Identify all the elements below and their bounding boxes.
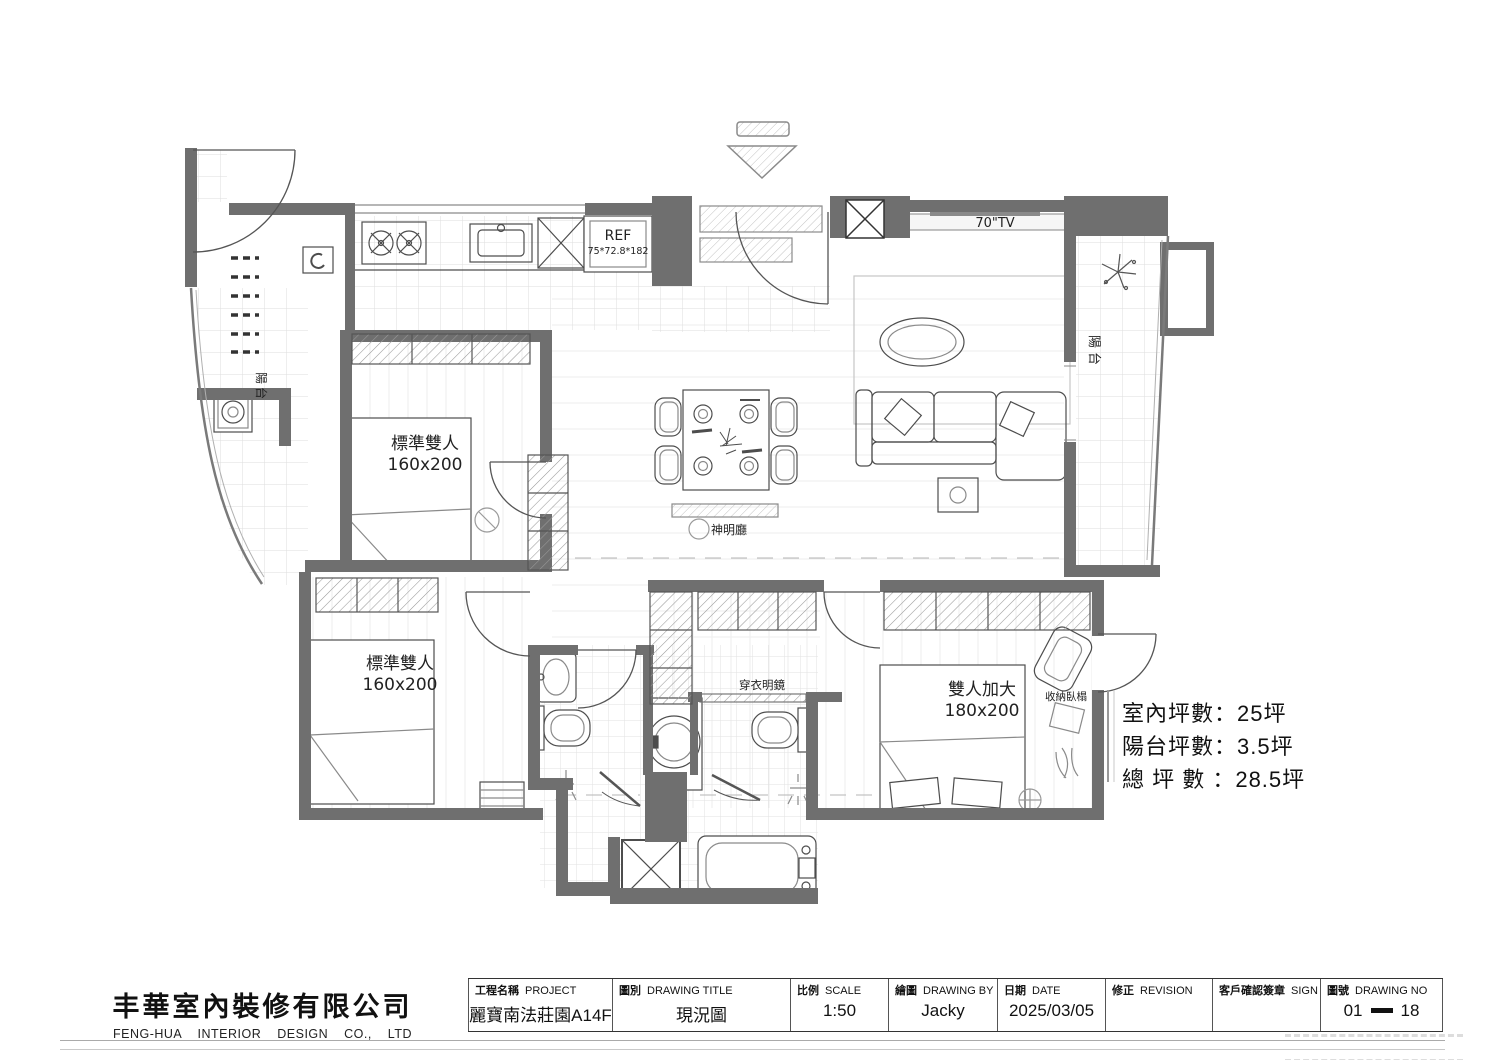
bedroom2-size: 160x200 bbox=[363, 675, 438, 695]
sign-label-en: SIGN bbox=[1291, 985, 1318, 997]
revision-label-zh: 修正 bbox=[1112, 985, 1134, 997]
entry-door-panels bbox=[700, 206, 822, 262]
floor-plan: 標準雙人 160x200 標準雙人 160x200 雙人加大 180x200 R… bbox=[0, 0, 1500, 1060]
sign-label-zh: 客戶確認簽章 bbox=[1219, 985, 1285, 997]
scale-label-zh: 比例 bbox=[797, 985, 819, 997]
by-value: Jacky bbox=[889, 1001, 997, 1021]
area-balcony: 陽台坪數：3.5坪 bbox=[1122, 730, 1305, 763]
project-label-en: PROJECT bbox=[525, 985, 576, 997]
bedroom3-label: 雙人加大 bbox=[948, 680, 1016, 700]
area-ticks bbox=[1108, 690, 1114, 782]
bedroom1-size: 160x200 bbox=[388, 455, 463, 475]
title-label-en: DRAWING TITLE bbox=[647, 985, 733, 997]
dressing-mirror-label: 穿衣明鏡 bbox=[739, 678, 785, 692]
bedroom1-label: 標準雙人 bbox=[391, 434, 459, 454]
cell-drawing-by: 繪圖DRAWING BY Jacky bbox=[888, 979, 997, 1031]
date-value: 2025/03/05 bbox=[998, 1001, 1105, 1021]
no-label-en: DRAWING NO bbox=[1355, 985, 1427, 997]
project-value: 麗寶南法莊園A14F bbox=[469, 1001, 612, 1026]
cell-drawing-no: 圖號DRAWING NO 0118 bbox=[1320, 979, 1443, 1031]
date-label-zh: 日期 bbox=[1004, 985, 1026, 997]
drawing-no-right: 18 bbox=[1401, 1001, 1420, 1020]
cell-sign: 客戶確認簽章SIGN bbox=[1212, 979, 1320, 1031]
company-block: 丰華室內裝修有限公司 FENG-HUA INTERIOR DESIGN CO.,… bbox=[60, 985, 465, 1041]
drawing-no-left: 01 bbox=[1344, 1001, 1363, 1020]
shrine-hall-label: 神明廳 bbox=[711, 522, 747, 537]
by-label-en: DRAWING BY bbox=[923, 985, 994, 997]
dining-table-icon bbox=[683, 390, 769, 490]
by-label-zh: 繪圖 bbox=[895, 985, 917, 997]
date-label-en: DATE bbox=[1032, 985, 1061, 997]
entry-arrow-icon bbox=[728, 122, 796, 178]
sheet-rule-2 bbox=[60, 1049, 1445, 1050]
company-name-en: FENG-HUA INTERIOR DESIGN CO., LTD bbox=[60, 1027, 465, 1041]
storage-daybed-label: 收納臥榻 bbox=[1045, 690, 1087, 703]
title-block: 工程名稱PROJECT 麗寶南法莊園A14F 圖別DRAWING TITLE 現… bbox=[468, 978, 1443, 1032]
drawing-sheet: 標準雙人 160x200 標準雙人 160x200 雙人加大 180x200 R… bbox=[0, 0, 1500, 1060]
refrigerator bbox=[584, 216, 652, 272]
bedroom2-label: 標準雙人 bbox=[366, 654, 434, 674]
fridge-label: REF bbox=[605, 228, 632, 244]
project-label-zh: 工程名稱 bbox=[475, 985, 519, 997]
sheet-rule-1 bbox=[60, 1040, 1445, 1041]
title-label-zh: 圖別 bbox=[619, 985, 641, 997]
drawing-no-value: 0118 bbox=[1321, 1001, 1442, 1021]
bedroom3-size: 180x200 bbox=[945, 701, 1020, 721]
scale-value: 1:50 bbox=[791, 1001, 888, 1021]
cell-date: 日期DATE 2025/03/05 bbox=[997, 979, 1105, 1031]
gas-meter-icon bbox=[303, 247, 333, 273]
structural-column bbox=[846, 200, 884, 238]
balcony-left-label: 陽台 bbox=[254, 372, 269, 402]
drawing-no-dash bbox=[1371, 1008, 1393, 1013]
no-label-zh: 圖號 bbox=[1327, 985, 1349, 997]
area-indoor: 室內坪數：25坪 bbox=[1122, 697, 1305, 730]
cell-scale: 比例SCALE 1:50 bbox=[790, 979, 888, 1031]
cell-drawing-title: 圖別DRAWING TITLE 現況圖 bbox=[612, 979, 790, 1031]
revision-label-en: REVISION bbox=[1140, 985, 1193, 997]
cell-revision: 修正REVISION bbox=[1105, 979, 1212, 1031]
area-summary: 室內坪數：25坪 陽台坪數：3.5坪 總 坪 數 ：28.5坪 bbox=[1122, 697, 1305, 796]
area-total: 總 坪 數 ：28.5坪 bbox=[1122, 763, 1305, 796]
tv-label: 70"TV bbox=[975, 216, 1014, 231]
watermark-dashes bbox=[1285, 1034, 1463, 1060]
title-value: 現況圖 bbox=[613, 1001, 790, 1026]
company-name-zh: 丰華室內裝修有限公司 bbox=[60, 985, 465, 1024]
balcony-right-label: 陽台 bbox=[1086, 335, 1101, 369]
cell-project: 工程名稱PROJECT 麗寶南法莊園A14F bbox=[468, 979, 612, 1031]
scale-label-en: SCALE bbox=[825, 985, 861, 997]
fridge-size: 75*72.8*182 bbox=[588, 246, 649, 257]
dressing-mirror-strip bbox=[700, 694, 806, 702]
